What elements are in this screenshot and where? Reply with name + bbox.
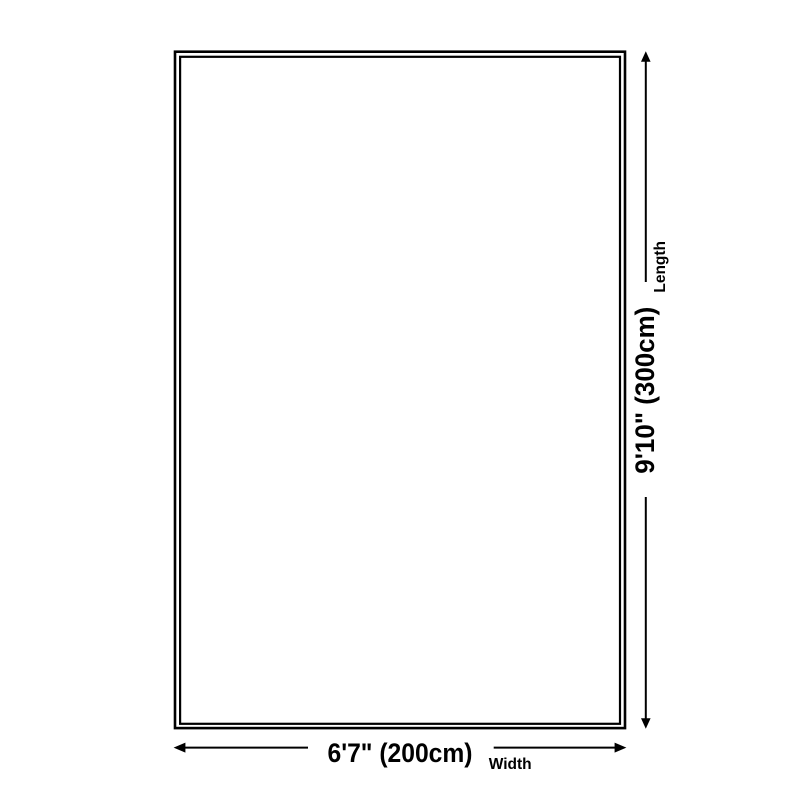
svg-text:Width: Width [489, 756, 532, 773]
svg-text:Length: Length [652, 241, 669, 293]
svg-text:6'7" (200cm): 6'7" (200cm) [328, 738, 473, 768]
svg-text:9'10" (300cm): 9'10" (300cm) [630, 307, 660, 474]
